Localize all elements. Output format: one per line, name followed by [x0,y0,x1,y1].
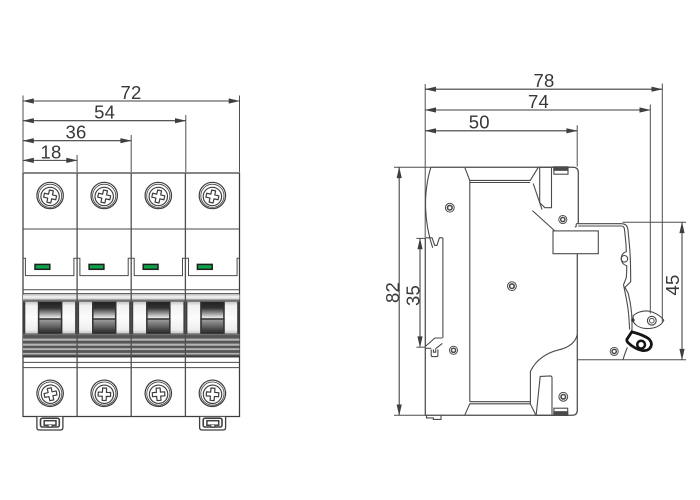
svg-text:18: 18 [41,141,62,162]
svg-text:35: 35 [403,285,424,306]
svg-text:36: 36 [66,122,87,143]
svg-text:54: 54 [94,102,115,123]
svg-text:72: 72 [121,82,142,103]
svg-text:45: 45 [662,275,683,296]
svg-text:82: 82 [382,282,403,303]
svg-text:74: 74 [528,91,549,112]
svg-text:50: 50 [469,112,490,133]
svg-text:78: 78 [534,70,555,91]
